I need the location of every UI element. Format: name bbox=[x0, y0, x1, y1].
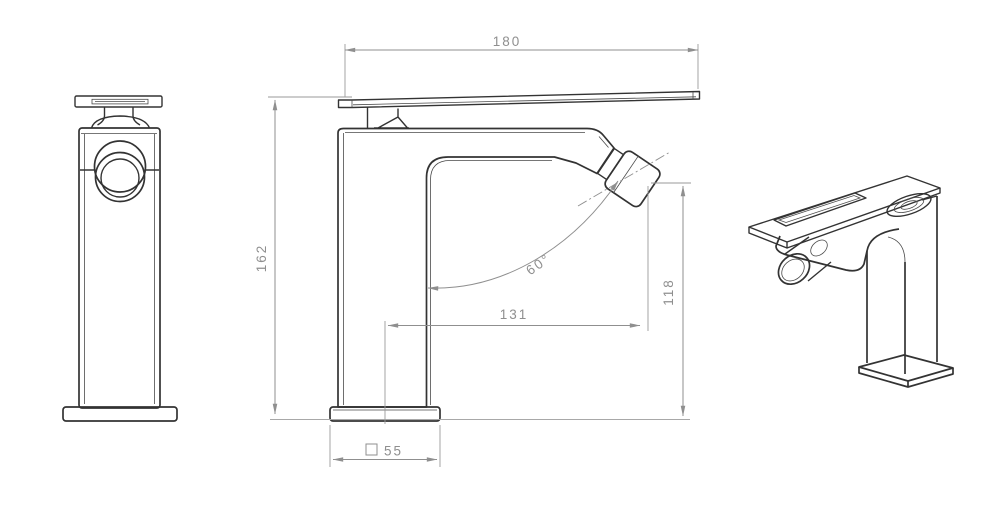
side-aerator-nozzle bbox=[594, 143, 663, 209]
nozzle-center-line bbox=[578, 152, 670, 206]
dimension-180-label: 180 bbox=[493, 34, 522, 49]
dimension-55: 55 bbox=[330, 425, 440, 467]
side-handle-lever bbox=[339, 92, 700, 108]
persp-pivot bbox=[884, 189, 933, 221]
front-cartridge-stem bbox=[92, 108, 150, 129]
dimension-60deg-label: 60° bbox=[523, 251, 553, 278]
dimension-162-label: 162 bbox=[254, 244, 269, 273]
front-aerator bbox=[95, 141, 146, 202]
front-view bbox=[63, 96, 177, 421]
front-body bbox=[79, 128, 160, 408]
persp-column bbox=[867, 196, 937, 374]
dimension-131-label: 131 bbox=[500, 307, 529, 322]
dimension-118-label: 118 bbox=[661, 278, 676, 306]
dimension-180: 180 bbox=[345, 34, 698, 97]
square-symbol bbox=[366, 444, 377, 455]
side-body-outline bbox=[338, 129, 614, 408]
side-cartridge-joint bbox=[368, 107, 410, 128]
front-base-plate bbox=[63, 407, 177, 421]
dimension-55-label: 55 bbox=[384, 444, 403, 459]
persp-handle-plate bbox=[749, 176, 940, 248]
dimension-131: 131 bbox=[385, 186, 648, 424]
side-view: 180 162 118 131 60° bbox=[254, 34, 700, 467]
perspective-view bbox=[749, 176, 953, 387]
front-handle bbox=[75, 96, 162, 107]
technical-drawing-canvas: 180 162 118 131 60° bbox=[0, 0, 1000, 513]
dimension-118: 118 bbox=[651, 183, 691, 416]
dimension-60deg: 60° bbox=[428, 181, 618, 288]
drawing-page: 180 162 118 131 60° bbox=[0, 0, 1000, 513]
persp-base-plate bbox=[859, 355, 953, 387]
